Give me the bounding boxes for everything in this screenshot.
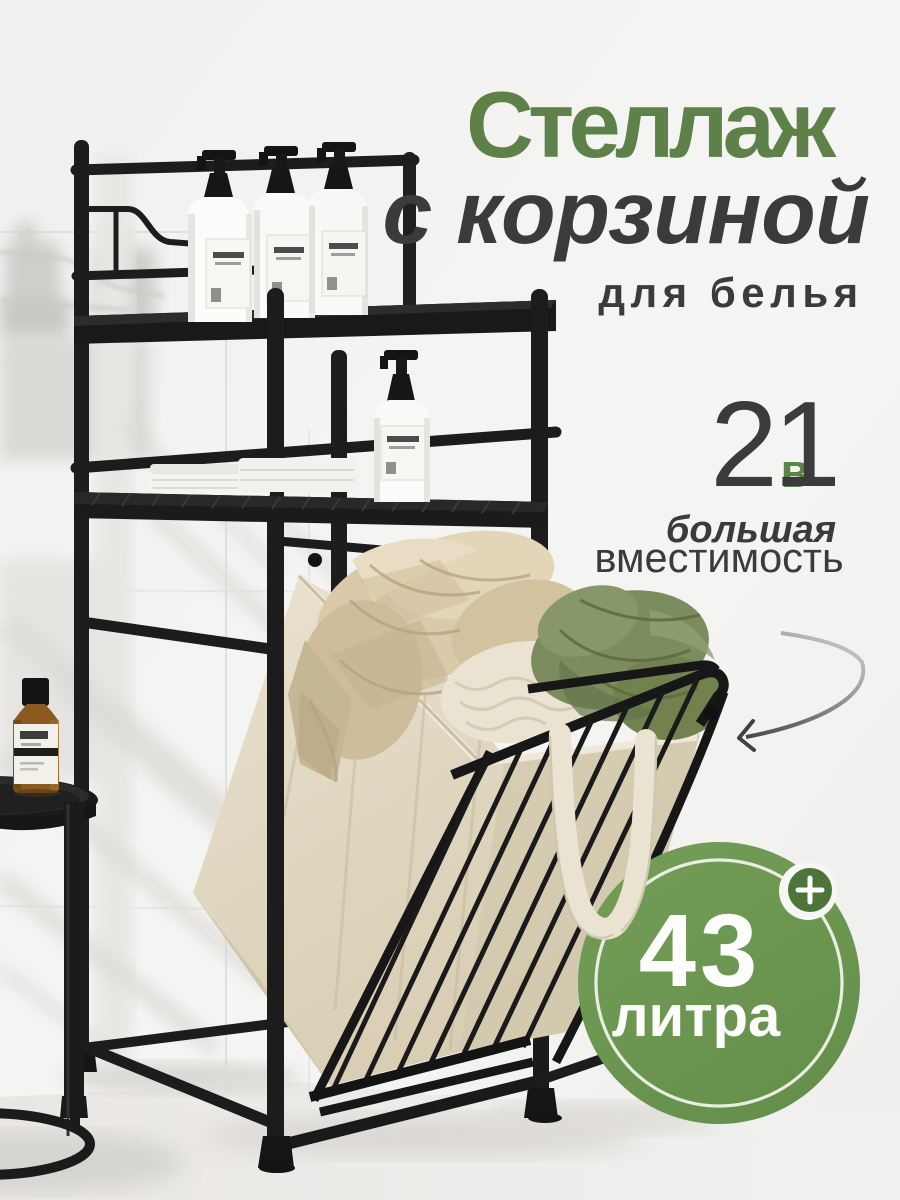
svg-text:2: 2: [710, 376, 778, 512]
svg-text:вместимость: вместимость: [594, 534, 843, 581]
svg-text:литра: литра: [612, 984, 781, 1049]
svg-text:1: 1: [773, 376, 841, 512]
svg-text:для белья: для белья: [598, 269, 863, 316]
svg-text:с корзиной: с корзиной: [383, 162, 870, 262]
